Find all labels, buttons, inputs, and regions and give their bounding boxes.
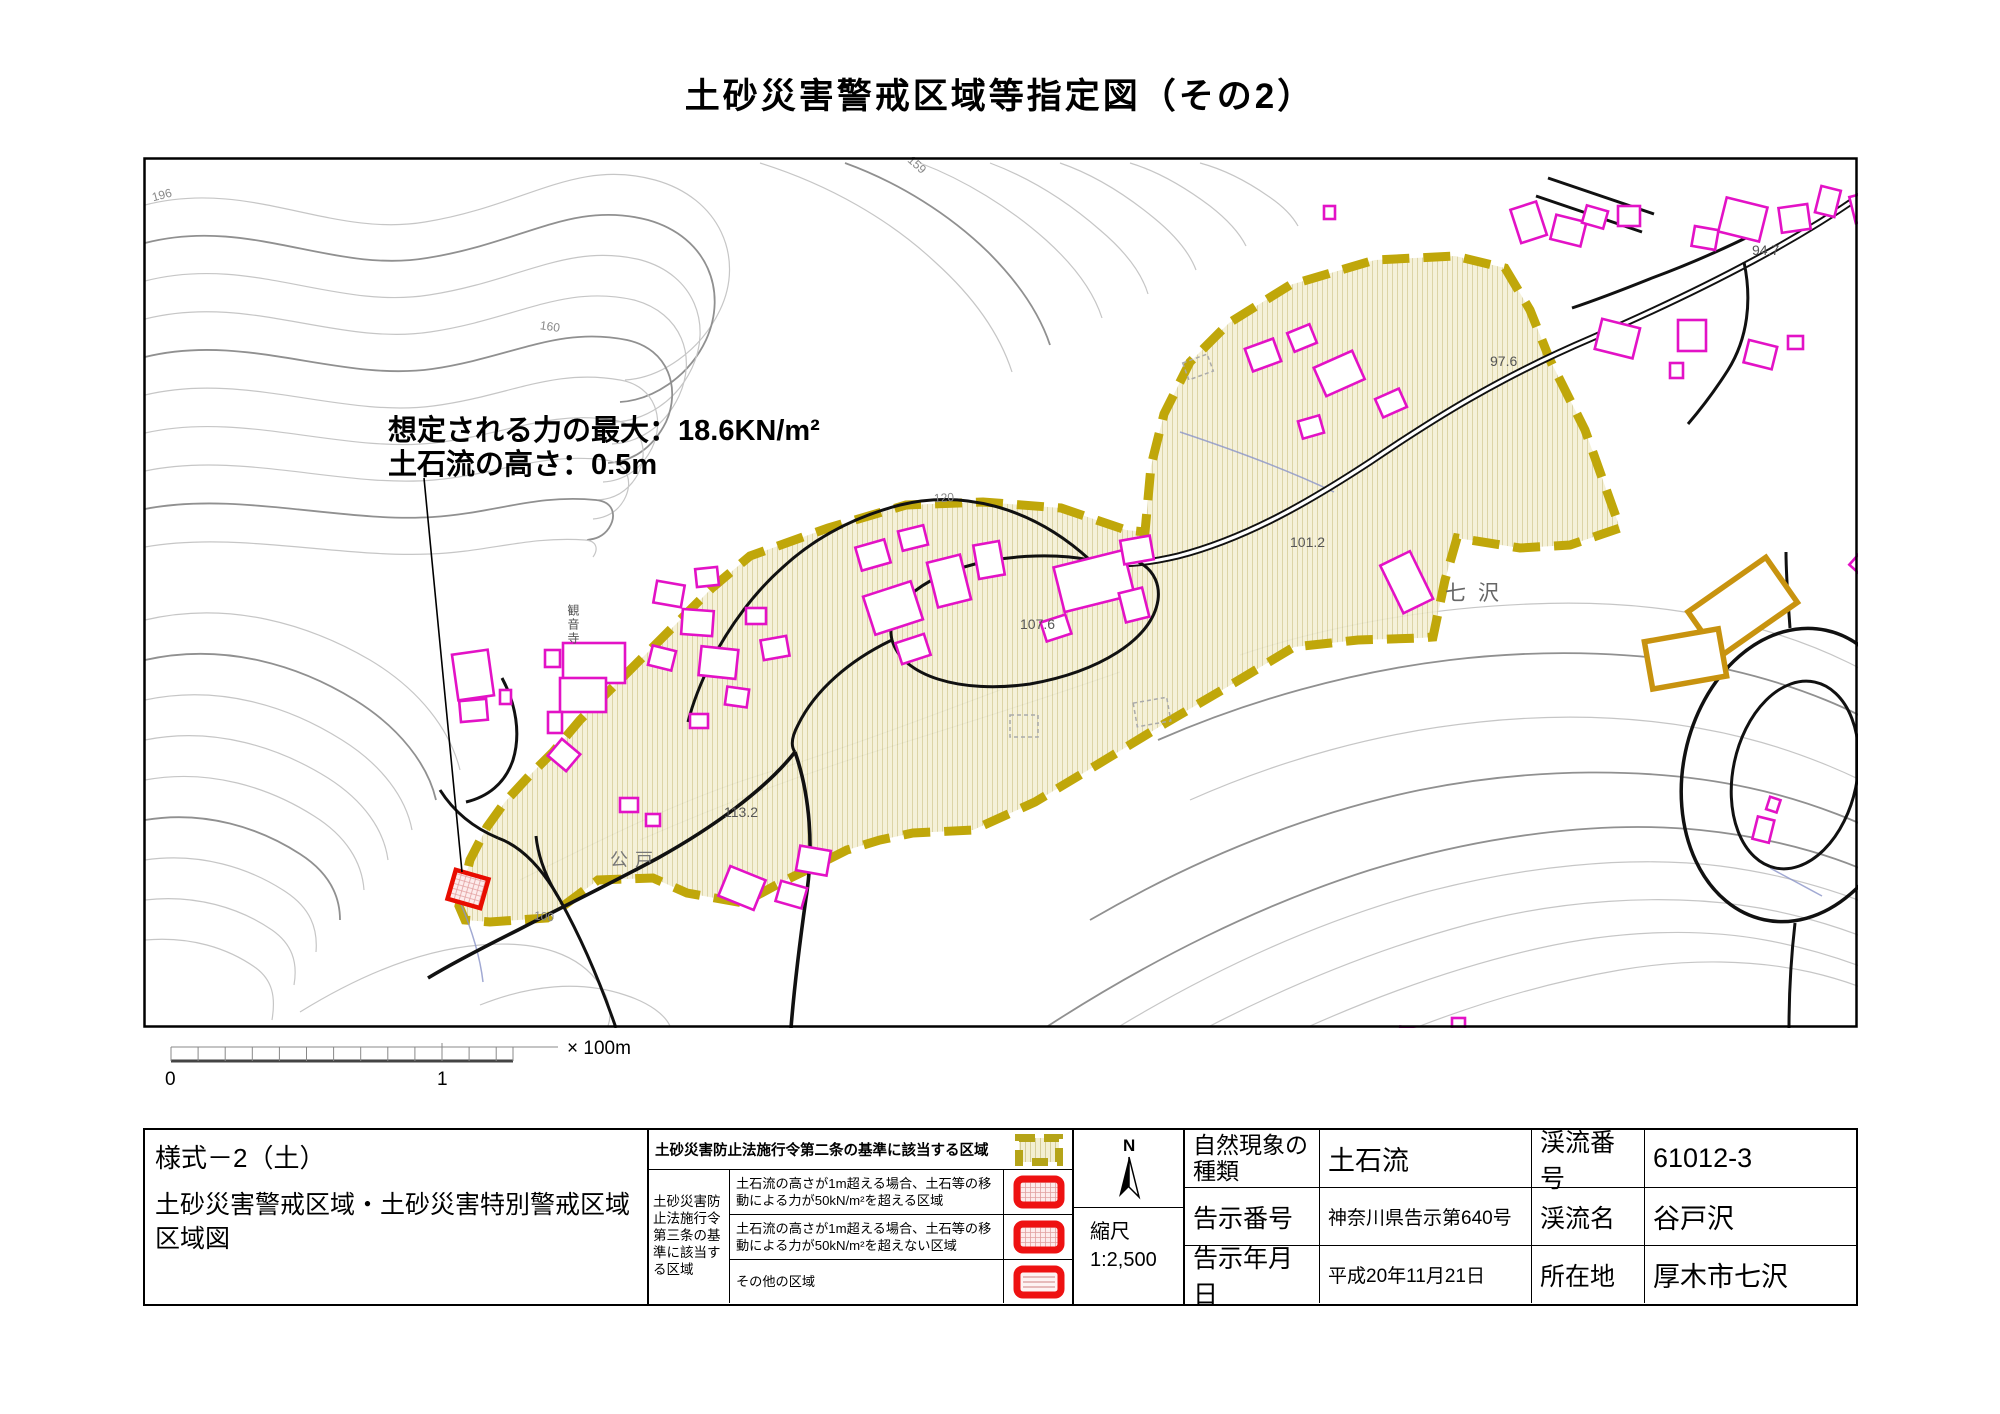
contour-label-159: 159 [905,157,929,177]
hazard-map: 想定される力の最大：18.6KN/m² 土石流の高さ：0.5m 94.7 97.… [143,157,1858,1028]
legend-group-label: 土砂災害防止法施行令第三条の基準に該当する区域 [649,1170,730,1303]
notice-date-label: 告示年月日 [1185,1246,1320,1303]
temple-label: 観音寺 [565,604,582,646]
place-nanasawa: 七沢 [1445,582,1511,605]
legend-row-b-label: 土石流の高さが1m超える場合、土石等の移動による力が50kN/m²を超える区域 [730,1170,1004,1215]
legend-red-lines-swatch [1004,1260,1074,1303]
map-area: 想定される力の最大：18.6KN/m² 土石流の高さ：0.5m 94.7 97.… [143,157,1858,1028]
legend-row-c-label: 土石流の高さが1m超える場合、土石等の移動による力が50kN/m²を超えない区域 [730,1215,1004,1260]
form-name: 土砂災害警戒区域・土砂災害特別警戒区域区域図 [155,1189,637,1257]
contour-label-160: 160 [539,318,561,335]
map-scale-value: 1:2,500 [1090,1246,1183,1274]
map-scale: 縮尺 1:2,500 [1074,1208,1183,1304]
legend-zone-swatch [1004,1130,1074,1170]
elev-94-7: 94.7 [1752,242,1779,258]
annotation-line1: 想定される力の最大：18.6KN/m² [388,413,820,447]
form-code: 様式－2（土） [155,1138,637,1175]
legend-red-grid-swatch-1 [1004,1170,1074,1215]
compass-scale-cell: N 縮尺 1:2,500 [1072,1130,1183,1304]
legend-row-d-label: その他の区域 [730,1260,1004,1303]
map-scale-label: 縮尺 [1090,1218,1183,1246]
info-table: 様式－2（土） 土砂災害警戒区域・土砂災害特別警戒区域区域図 土砂災害防止法施行… [143,1128,1858,1306]
phenomenon-label: 自然現象の種類 [1185,1130,1320,1188]
notice-date-value: 平成20年11月21日 [1320,1246,1532,1303]
scale-bar: 0 1 × 100m [143,1033,703,1095]
scale-one-label: 1 [437,1069,448,1090]
special-hazard-zone-marker [448,870,489,908]
legend-row-a-label: 土砂災害防止法施行令第二条の基準に該当する区域 [649,1130,1004,1170]
notice-no-value: 神奈川県告示第640号 [1320,1188,1532,1246]
scale-unit-label: × 100m [567,1038,631,1059]
north-arrow-icon [1119,1157,1129,1197]
north-arrow: N [1074,1130,1183,1208]
scale-zero-label: 0 [165,1069,176,1090]
phenomenon-value: 土石流 [1320,1130,1532,1188]
elev-113-2: 113.2 [724,804,758,820]
place-koudo: 公戸 [610,850,660,870]
page-title: 土砂災害警戒区域等指定図（その2） [0,68,2000,119]
stream-name-value: 谷戸沢 [1645,1188,1856,1246]
page: 土砂災害警戒区域等指定図（その2） [0,0,2000,1414]
notice-no-label: 告示番号 [1185,1188,1320,1246]
location-value: 厚木市七沢 [1645,1246,1856,1303]
form-cell: 様式－2（土） 土砂災害警戒区域・土砂災害特別警戒区域区域図 [145,1130,647,1304]
legend: 土砂災害防止法施行令第二条の基準に該当する区域 土砂災害防止法施行令第三条の基準… [647,1130,1072,1304]
stream-name-label: 渓流名 [1532,1188,1645,1246]
stream-no-label: 渓流番号 [1532,1130,1645,1188]
elev-101-2: 101.2 [1290,534,1325,550]
contour-label-100: 100 [533,908,555,924]
elev-97-6: 97.6 [1490,353,1517,369]
contour-label-196: 196 [150,186,173,205]
location-label: 所在地 [1532,1246,1645,1303]
legend-red-grid-swatch-2 [1004,1215,1074,1260]
attributes-grid: 自然現象の種類 土石流 渓流番号 61012-3 告示番号 神奈川県告示第640… [1183,1130,1856,1304]
north-label: N [1123,1136,1135,1155]
stream-no-value: 61012-3 [1645,1130,1856,1188]
annotation-line2: 土石流の高さ：0.5m [388,448,657,481]
ochre-building [1644,557,1797,689]
elev-107-6: 107.6 [1020,616,1055,632]
contour-label-120: 120 [934,490,955,505]
